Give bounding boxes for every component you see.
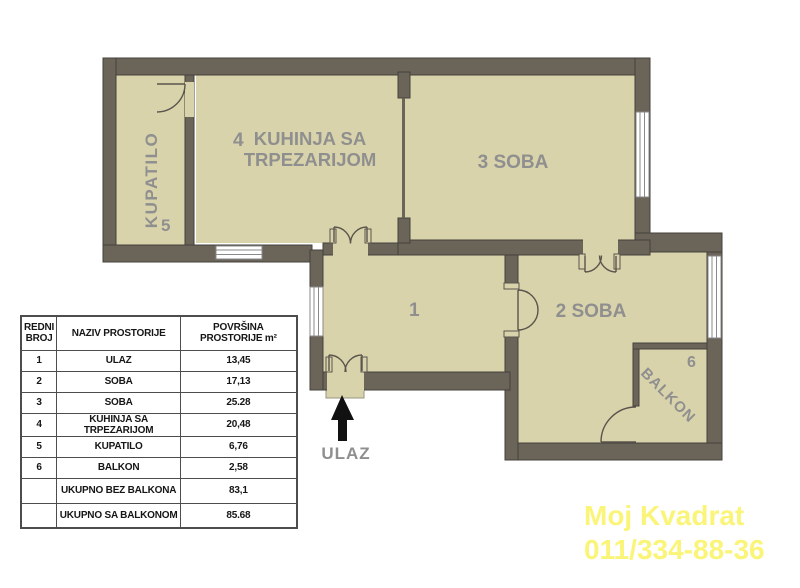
floor-plan-page: KUPATILO 5 4 KUHINJA SA TRPEZARIJOM 3 SO… <box>0 0 800 588</box>
header-povrsina: POVRŠINA PROSTORIJE m² <box>181 316 297 350</box>
room-label-kupatilo: KUPATILO <box>142 125 162 235</box>
cell-area: 13,45 <box>181 350 297 371</box>
room-label-soba2: 2 SOBA <box>531 301 651 323</box>
table-row: 6 BALKON 2,58 <box>21 457 297 478</box>
area-table: REDNI BROJ NAZIV PROSTORIJE POVRŠINA PRO… <box>20 315 298 529</box>
table-row-total-without-balcony: UKUPNO BEZ BALKONA 83,1 <box>21 478 297 503</box>
cell-area: 85.68 <box>181 503 297 528</box>
cell-name: UKUPNO BEZ BALKONA <box>57 478 181 503</box>
cell-name: SOBA <box>57 392 181 413</box>
table-row: 4 KUHINJA SA TRPEZARIJOM 20,48 <box>21 413 297 436</box>
cell-no: 3 <box>21 392 57 413</box>
cell-name: KUHINJA SA TRPEZARIJOM <box>57 413 181 436</box>
entrance-arrow-icon <box>331 395 354 441</box>
cell-name: SOBA <box>57 371 181 392</box>
table-row-total-with-balcony: UKUPNO SA BALKONOM 85.68 <box>21 503 297 528</box>
cell-area: 83,1 <box>181 478 297 503</box>
room-number-kupatilo: 5 <box>161 216 170 236</box>
watermark-brand: Moj Kvadrat <box>584 499 765 533</box>
header-redni-broj: REDNI BROJ <box>21 316 57 350</box>
cell-no: 6 <box>21 457 57 478</box>
room-label-kitchen-line2: TRPEZARIJOM <box>228 149 392 170</box>
header-naziv-prostorije: NAZIV PROSTORIJE <box>57 316 181 350</box>
area-table-header-row: REDNI BROJ NAZIV PROSTORIJE POVRŠINA PRO… <box>21 316 297 350</box>
table-row: 5 KUPATILO 6,76 <box>21 436 297 457</box>
cell-name: KUPATILO <box>57 436 181 457</box>
room-label-kitchen-line1: KUHINJA SA <box>228 128 392 149</box>
cell-area: 25.28 <box>181 392 297 413</box>
table-row: 1 ULAZ 13,45 <box>21 350 297 371</box>
cell-area: 17,13 <box>181 371 297 392</box>
table-row: 3 SOBA 25.28 <box>21 392 297 413</box>
cell-area: 6,76 <box>181 436 297 457</box>
cell-name: UKUPNO SA BALKONOM <box>57 503 181 528</box>
room-number-balkon: 6 <box>687 354 696 372</box>
entrance-label: ULAZ <box>318 444 374 464</box>
table-row: 2 SOBA 17,13 <box>21 371 297 392</box>
cell-name: ULAZ <box>57 350 181 371</box>
room-label-soba3: 3 SOBA <box>453 152 573 174</box>
cell-no <box>21 503 57 528</box>
cell-area: 20,48 <box>181 413 297 436</box>
cell-name: BALKON <box>57 457 181 478</box>
cell-no: 1 <box>21 350 57 371</box>
cell-no: 2 <box>21 371 57 392</box>
cell-no <box>21 478 57 503</box>
cell-no: 5 <box>21 436 57 457</box>
room-number-hall: 1 <box>409 300 420 322</box>
watermark-phone: 011/334-88-36 <box>584 533 765 567</box>
watermark: Moj Kvadrat 011/334-88-36 <box>584 499 765 567</box>
room-label-kitchen: KUHINJA SA TRPEZARIJOM <box>228 128 392 170</box>
cell-no: 4 <box>21 413 57 436</box>
cell-area: 2,58 <box>181 457 297 478</box>
